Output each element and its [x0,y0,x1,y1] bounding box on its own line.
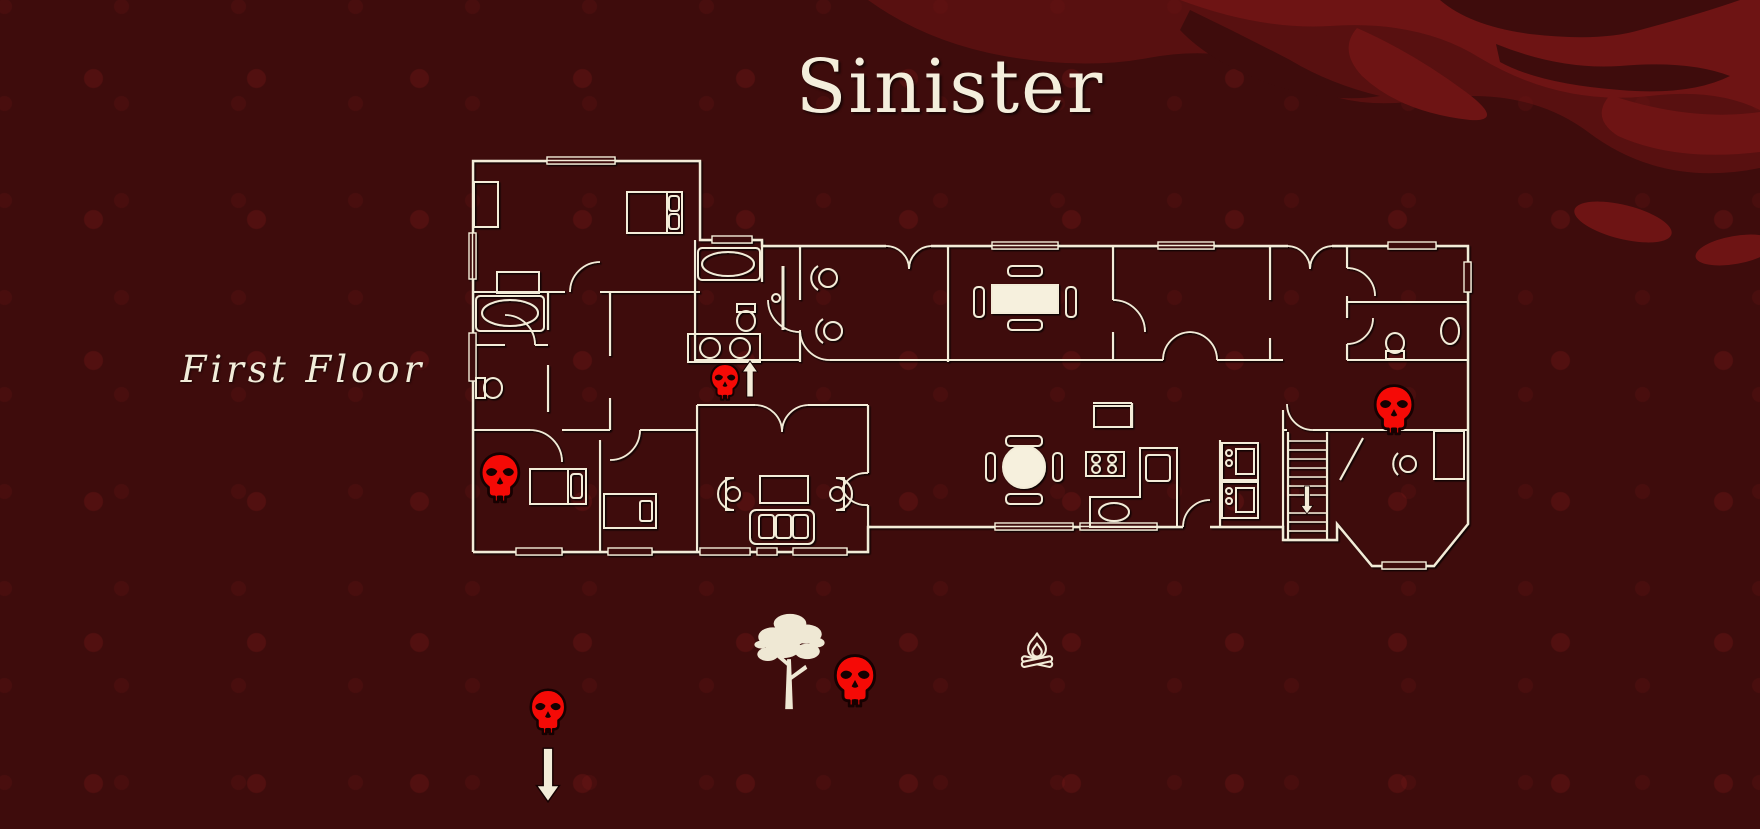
campfire-icon [1021,633,1052,667]
arrow-driveway-down-arrow [537,748,560,802]
dining-set [974,266,1076,330]
plan-windows [469,157,1471,569]
bed-guest [530,469,586,504]
plan-furniture [474,182,1464,544]
armchair-left [718,478,740,510]
skull-marker-driveway-skull[interactable] [531,690,565,734]
armchair-right [830,478,852,510]
bathtub-2 [698,248,760,280]
markers-layer [481,361,1413,802]
arrow-stairs-down-arrow [1301,486,1313,514]
study-desk [1393,431,1464,479]
closet [474,182,498,227]
double-oven [1222,443,1258,518]
plan-doors [505,246,1375,527]
bathtub-1 [476,296,544,331]
skull-marker-hallway-skull[interactable] [711,364,739,400]
bed-master [627,192,682,233]
kitchen-island [1090,448,1177,527]
toilet-1 [476,378,502,398]
stove [1086,452,1124,476]
breakfast-table [986,436,1062,504]
coffee-table [760,476,808,503]
bed-kids [604,494,656,528]
toilet-3 [1386,333,1404,359]
sink-3 [1441,318,1459,344]
floor-label: First Floor [181,348,426,391]
mirror-door [772,266,783,330]
media-chairs [811,266,842,343]
plan-walls [473,161,1468,566]
fridge [1094,406,1131,427]
skull-marker-study-skull[interactable] [1375,386,1413,434]
sinister-floorplan-page: { "page": { "title": "Sinister", "floor_… [0,0,1760,829]
dresser [497,272,539,293]
skull-marker-bedroom-skull[interactable] [481,454,519,502]
skull-marker-yard-skull[interactable] [835,656,874,706]
vanity-double-sink [688,334,760,362]
tree-icon [754,614,824,709]
toilet-2 [737,304,755,331]
sofa [750,510,814,544]
arrow-hallway-up-arrow [742,361,757,397]
page-title: Sinister [796,44,1105,130]
